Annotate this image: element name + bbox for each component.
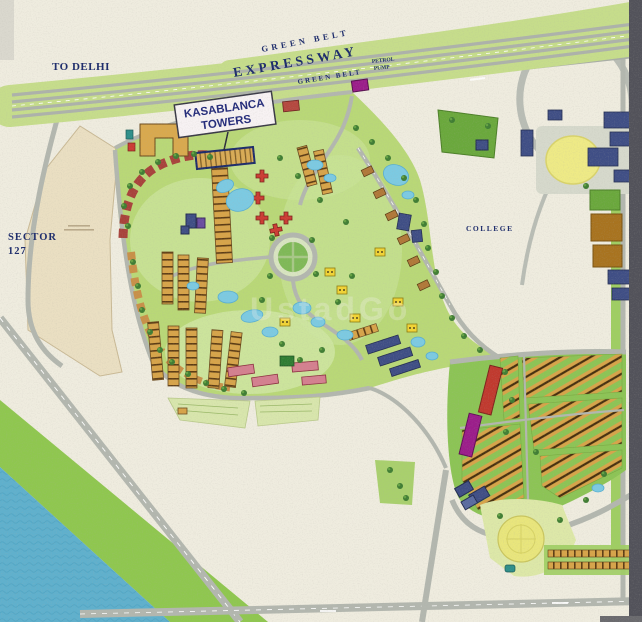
site-map-canvas: KASABLANCA TOWERS TO DELHI GREEN BELT EX… <box>0 0 642 622</box>
sports-court <box>280 356 294 366</box>
row-houses-block <box>528 398 622 450</box>
label-sector-line2: 127 <box>8 246 27 257</box>
watermark-text: UstadGo <box>250 291 411 327</box>
petrol-pump-building <box>351 79 368 92</box>
yellow-building <box>375 248 385 256</box>
brown-plot <box>593 245 622 267</box>
row-houses-strip <box>548 550 630 557</box>
label-college: COLLEGE <box>466 224 514 233</box>
green-parcel <box>438 110 498 158</box>
site-map: KASABLANCA TOWERS TO DELHI GREEN BELT EX… <box>0 0 642 622</box>
roundabout-garden <box>271 235 315 279</box>
green-plot <box>590 190 620 210</box>
scan-border-corner <box>600 616 642 622</box>
row-houses-strip <box>548 562 630 569</box>
label-to-delhi: TO DELHI <box>52 61 110 73</box>
row-houses-block <box>522 354 622 398</box>
label-sector-line1: SECTOR <box>8 232 57 243</box>
scan-border-right <box>629 0 642 622</box>
small-pool <box>505 565 515 572</box>
illegible-parcel-text <box>68 225 90 227</box>
brown-plot <box>591 214 622 241</box>
row-houses-cluster-a <box>162 252 208 313</box>
yellow-building <box>325 268 335 276</box>
scan-smudge <box>0 0 14 60</box>
